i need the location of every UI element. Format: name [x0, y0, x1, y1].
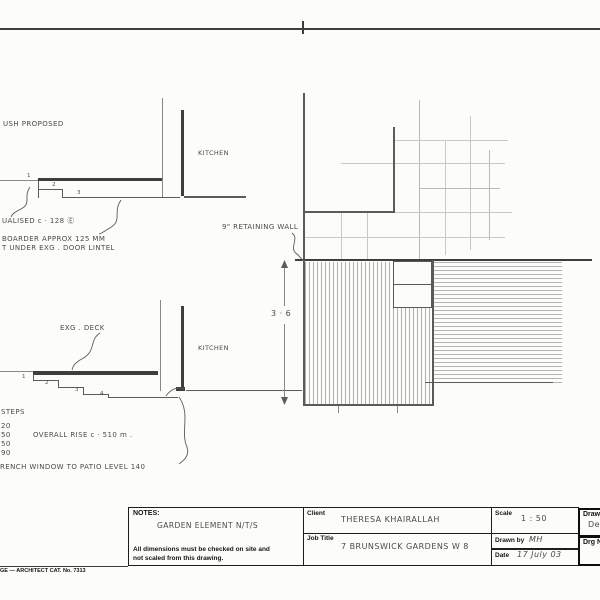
dimension-line	[284, 266, 285, 306]
upper-floor-line	[184, 196, 246, 198]
job-title-value: 7 BRUNSWICK GARDENS W 8	[341, 543, 469, 551]
lower-step-number: 4	[100, 392, 104, 398]
terrace-hatch-area	[305, 262, 393, 405]
grid-line	[341, 163, 505, 164]
alignment-tick	[302, 21, 304, 34]
lower-wall-inner-line	[160, 300, 161, 391]
riser-value: 50	[1, 441, 11, 448]
drawn-by-value: MH	[529, 536, 543, 544]
lower-wall-line	[181, 306, 184, 390]
date-label: Date	[495, 552, 509, 560]
upper-ground-line	[0, 180, 38, 181]
client-label: Client	[307, 510, 325, 518]
lower-ground-line	[0, 371, 33, 372]
upper-step-tread	[62, 197, 180, 198]
sheet-top-border	[0, 28, 600, 30]
upper-wall-line	[181, 110, 184, 196]
lower-step-tread	[58, 387, 83, 388]
boarder-annotation: BOARDER APPROX 125 MM	[2, 236, 105, 243]
plan-left-boundary	[303, 93, 305, 261]
upper-step-number: 3	[77, 191, 81, 197]
grid-line	[393, 140, 508, 141]
upper-step-number: 1	[27, 174, 31, 180]
job-title-label: Job Title	[307, 535, 334, 543]
deck-label: EXG . DECK	[60, 325, 105, 332]
retaining-wall-label: 9" RETAINING WALL	[222, 224, 298, 231]
scale-value: 1 : 50	[521, 515, 547, 523]
terrace-bottom-edge	[303, 404, 434, 406]
dimension-line	[284, 324, 285, 400]
ramp-hatch-area	[434, 262, 562, 383]
lower-step-number: 2	[45, 381, 49, 387]
client-value: THERESA KHAIRALLAH	[341, 516, 440, 524]
lower-step-tread	[83, 394, 108, 395]
upper-wall-inner-line	[162, 98, 163, 197]
drawing-sheet: USH PROPOSED 1 2 3 KITCHEN UALISED c · 1…	[0, 0, 600, 600]
terrace-left-edge	[303, 260, 305, 406]
upper-room-label: KITCHEN	[198, 150, 229, 157]
footer-line	[0, 566, 128, 567]
lower-step-number: 3	[75, 388, 79, 394]
terrace-tick	[338, 406, 339, 413]
drawing-label: Drawing	[583, 511, 600, 520]
grid-line	[470, 116, 471, 250]
equalised-annotation: UALISED c · 128 Ⓔ	[2, 218, 75, 225]
notes-body-line1: All dimensions must be checked on site a…	[133, 546, 270, 554]
plan-inner-edge	[393, 127, 395, 213]
scale-label: Scale	[495, 510, 512, 518]
date-value: 17 July 03	[517, 551, 562, 559]
notes-body-line2: not scaled from this drawing.	[133, 555, 223, 563]
lower-deck-line	[33, 371, 158, 375]
threshold-mark	[176, 387, 185, 391]
lower-step-tread	[108, 397, 178, 398]
notes-label: NOTES:	[133, 510, 159, 519]
overall-rise-note: OVERALL RISE c · 510 m .	[33, 432, 132, 439]
upper-step-number: 2	[52, 183, 56, 189]
riser-value: 50	[1, 432, 11, 439]
notes-content: GARDEN ELEMENT N/T/S	[157, 522, 258, 530]
plan-inner-edge	[303, 211, 393, 213]
riser-value: 90	[1, 450, 11, 457]
riser-value: 20	[1, 423, 11, 430]
dimension-value: 3 · 6	[271, 310, 291, 318]
lower-room-label: KITCHEN	[198, 345, 229, 352]
window-note: RENCH WINDOW TO PATIO LEVEL 140	[0, 464, 145, 471]
terrace-hatch-area	[393, 308, 432, 405]
drg-no-label: Drg No	[583, 539, 600, 548]
upper-deck-line	[38, 178, 162, 181]
proposed-note: USH PROPOSED	[3, 121, 64, 128]
plan-step	[393, 284, 432, 308]
grid-line	[419, 188, 500, 189]
footer-text: GE — ARCHITECT CAT. No. 7313	[0, 568, 86, 575]
plan-step	[393, 261, 432, 285]
drawing-value: De	[588, 521, 600, 529]
steps-heading: STEPS	[1, 409, 25, 416]
grid-line	[393, 212, 512, 213]
drawn-by-label: Drawn by	[495, 537, 524, 545]
grid-line	[303, 237, 505, 238]
ramp-bottom-edge	[425, 382, 553, 383]
lintel-annotation: T UNDER EXG . DOOR LINTEL	[2, 245, 115, 252]
upper-step-tread	[38, 189, 62, 190]
lower-step-number: 1	[22, 375, 26, 381]
retaining-wall-line	[295, 259, 592, 261]
terrace-tick	[397, 406, 398, 413]
